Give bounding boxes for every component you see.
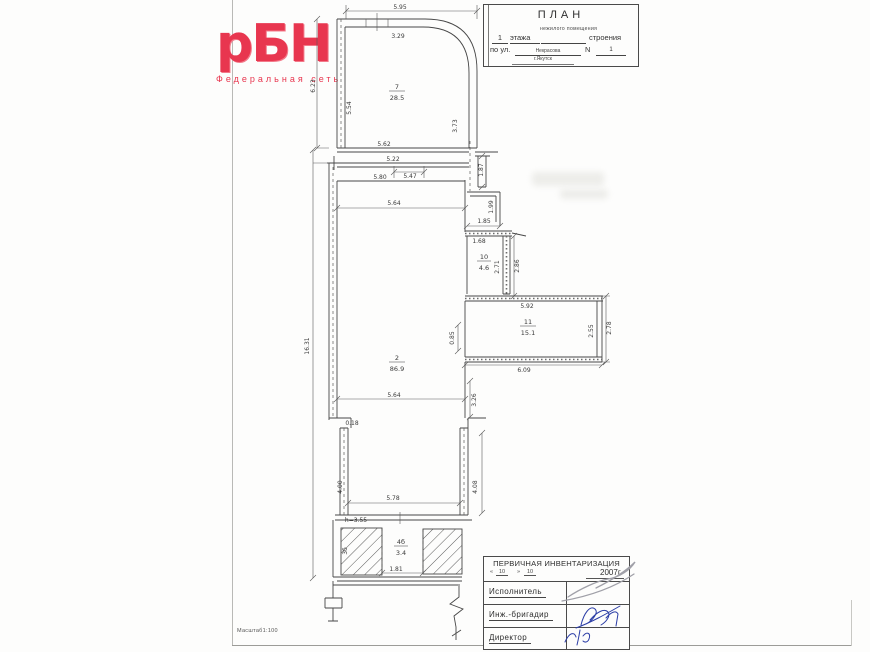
scale-note: Масштаб1:100 xyxy=(237,628,278,634)
page-border-right xyxy=(851,600,852,646)
dim-label: 5.64 xyxy=(387,200,401,207)
room-note: 3б xyxy=(342,547,349,555)
street-label: по ул. xyxy=(490,45,510,55)
scan-artifact xyxy=(560,189,608,199)
insulation-dots xyxy=(465,234,603,360)
stamp-title: ПЕРВИЧНАЯ ИНВЕНТАРИЗАЦИЯ xyxy=(484,559,629,568)
dimension-labels: 5.95 3.29 6.23 5.54 3.73 5.62 5.22 5.47 … xyxy=(304,4,613,573)
dim-label: 5.22 xyxy=(386,156,400,163)
dim-label: 5.62 xyxy=(377,141,391,148)
room-area: 86.9 xyxy=(390,365,404,373)
date-day: 10 xyxy=(496,569,508,576)
title-row-street: по ул. Некрасова N 1 xyxy=(484,45,638,56)
street-name: Некрасова xyxy=(515,45,581,56)
logo-rbn: рБН Федеральная сеть xyxy=(216,16,326,84)
brigadier-label: Инж.-бригадир xyxy=(489,610,553,621)
dim-label: 5.95 xyxy=(393,4,407,11)
inventory-stamp-block: ПЕРВИЧНАЯ ИНВЕНТАРИЗАЦИЯ « 10 » 10 2007г… xyxy=(483,556,630,650)
logo-text: рБН xyxy=(216,16,326,72)
title-row-floor: 1 этажа строения xyxy=(484,33,638,44)
dim-label: 3.73 xyxy=(452,119,459,133)
dim-label: 1.85 xyxy=(477,218,491,225)
plan-title-block: ПЛАН нежилого помещения 1 этажа строения… xyxy=(483,4,639,67)
room-area: 15.1 xyxy=(521,329,535,337)
height-note: h=3.55 xyxy=(345,517,367,524)
quote-open: « xyxy=(490,569,493,575)
dim-label: 4.00 xyxy=(337,480,344,494)
room-area: 3.4 xyxy=(396,549,406,557)
dim-label: 5.47 xyxy=(403,173,417,180)
scan-artifact xyxy=(532,172,604,186)
dim-label: 2.55 xyxy=(588,324,595,338)
dim-label: 16.31 xyxy=(304,337,311,354)
room-labels: 7 28.5 2 86.9 10 4.6 11 15.1 4б 3.4 xyxy=(389,83,536,557)
director-label: Директор xyxy=(489,633,531,644)
dim-label: 1.81 xyxy=(389,566,403,573)
dim-label: 5.78 xyxy=(386,495,400,502)
quote-close: » xyxy=(517,569,520,575)
number-label: N xyxy=(585,45,590,55)
date-month: 10 xyxy=(524,569,536,576)
dim-label: 1.99 xyxy=(488,200,495,214)
floor-plan-drawing: 5.95 3.29 6.23 5.54 3.73 5.62 5.22 5.47 … xyxy=(0,0,870,652)
dim-label: 2.71 xyxy=(494,260,501,274)
plan-title: ПЛАН xyxy=(484,9,638,21)
walls xyxy=(325,13,603,640)
dim-label: 4.08 xyxy=(472,480,479,494)
dim-label: 0.85 xyxy=(449,331,456,345)
stamp-row-brigadier: Инж.-бригадир xyxy=(484,604,629,628)
wall-centerlines xyxy=(333,19,603,575)
hatched-block-left xyxy=(341,528,382,575)
dim-label: 5.80 xyxy=(373,174,387,181)
dim-label: 6.09 xyxy=(517,367,531,374)
dim-label: 3.26 xyxy=(471,393,478,407)
room-number: 11 xyxy=(524,318,532,326)
hatched-block-right xyxy=(423,529,462,574)
floor-number: 1 xyxy=(492,33,508,44)
dimension-ticks xyxy=(310,8,609,581)
date-year: 2007г. xyxy=(586,568,624,579)
dim-label: 1.87 xyxy=(478,163,485,177)
dim-label: 2.86 xyxy=(514,259,521,273)
room-number: 4б xyxy=(397,538,405,546)
stamp-divider xyxy=(566,581,567,649)
plan-subscript: нежилого помещения xyxy=(540,26,597,32)
stamp-row-director: Директор xyxy=(484,627,629,650)
dim-label: 0.18 xyxy=(345,420,359,427)
hatched-areas xyxy=(341,528,462,575)
number-value: 1 xyxy=(596,45,626,56)
stamp-header: ПЕРВИЧНАЯ ИНВЕНТАРИЗАЦИЯ « 10 » 10 2007г… xyxy=(484,557,629,582)
dim-label: 5.64 xyxy=(387,392,401,399)
executor-label: Исполнитель xyxy=(489,587,546,598)
room-number: 10 xyxy=(480,253,488,261)
blank-line xyxy=(541,33,586,44)
stamp-row-executor: Исполнитель xyxy=(484,581,629,605)
logo-subtitle: Федеральная сеть xyxy=(216,74,326,84)
window-ticks xyxy=(366,13,400,524)
room-area: 4.6 xyxy=(479,264,489,272)
page-border-left xyxy=(232,0,233,645)
document-page: рБН Федеральная сеть ПЛАН нежилого помещ… xyxy=(0,0,870,652)
dim-label: 5.54 xyxy=(346,101,353,115)
room-number: 7 xyxy=(395,83,399,91)
room-number: 2 xyxy=(395,354,399,362)
break-line xyxy=(450,584,463,640)
dim-label: 5.92 xyxy=(520,303,534,310)
dim-label: 2.78 xyxy=(606,321,613,335)
floor-word: этажа xyxy=(510,33,540,44)
dimension-lines xyxy=(310,5,610,581)
city-name: г.Якутск xyxy=(512,56,574,65)
dim-label: 1.68 xyxy=(472,238,486,245)
dim-label: 3.29 xyxy=(391,33,405,40)
room-area: 28.5 xyxy=(390,94,404,102)
building-word: строения xyxy=(589,33,621,43)
